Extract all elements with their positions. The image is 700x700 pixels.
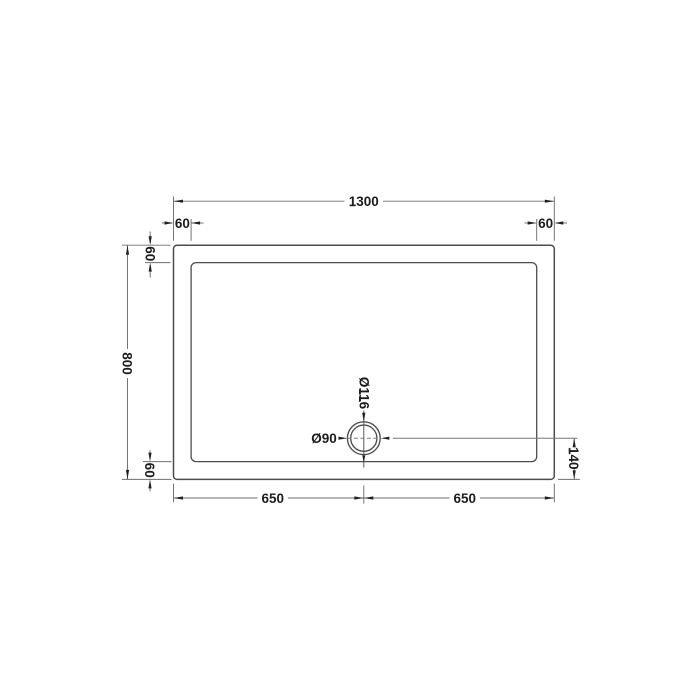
svg-text:Ø90: Ø90 <box>311 431 337 446</box>
svg-text:800: 800 <box>120 352 135 375</box>
svg-text:60: 60 <box>538 216 553 231</box>
svg-text:Ø116: Ø116 <box>356 377 371 410</box>
svg-text:60: 60 <box>142 463 157 478</box>
svg-text:140: 140 <box>566 447 581 470</box>
svg-text:650: 650 <box>454 491 477 506</box>
svg-text:1300: 1300 <box>349 194 379 209</box>
svg-text:60: 60 <box>142 246 157 261</box>
svg-text:650: 650 <box>262 491 285 506</box>
svg-text:60: 60 <box>175 216 190 231</box>
